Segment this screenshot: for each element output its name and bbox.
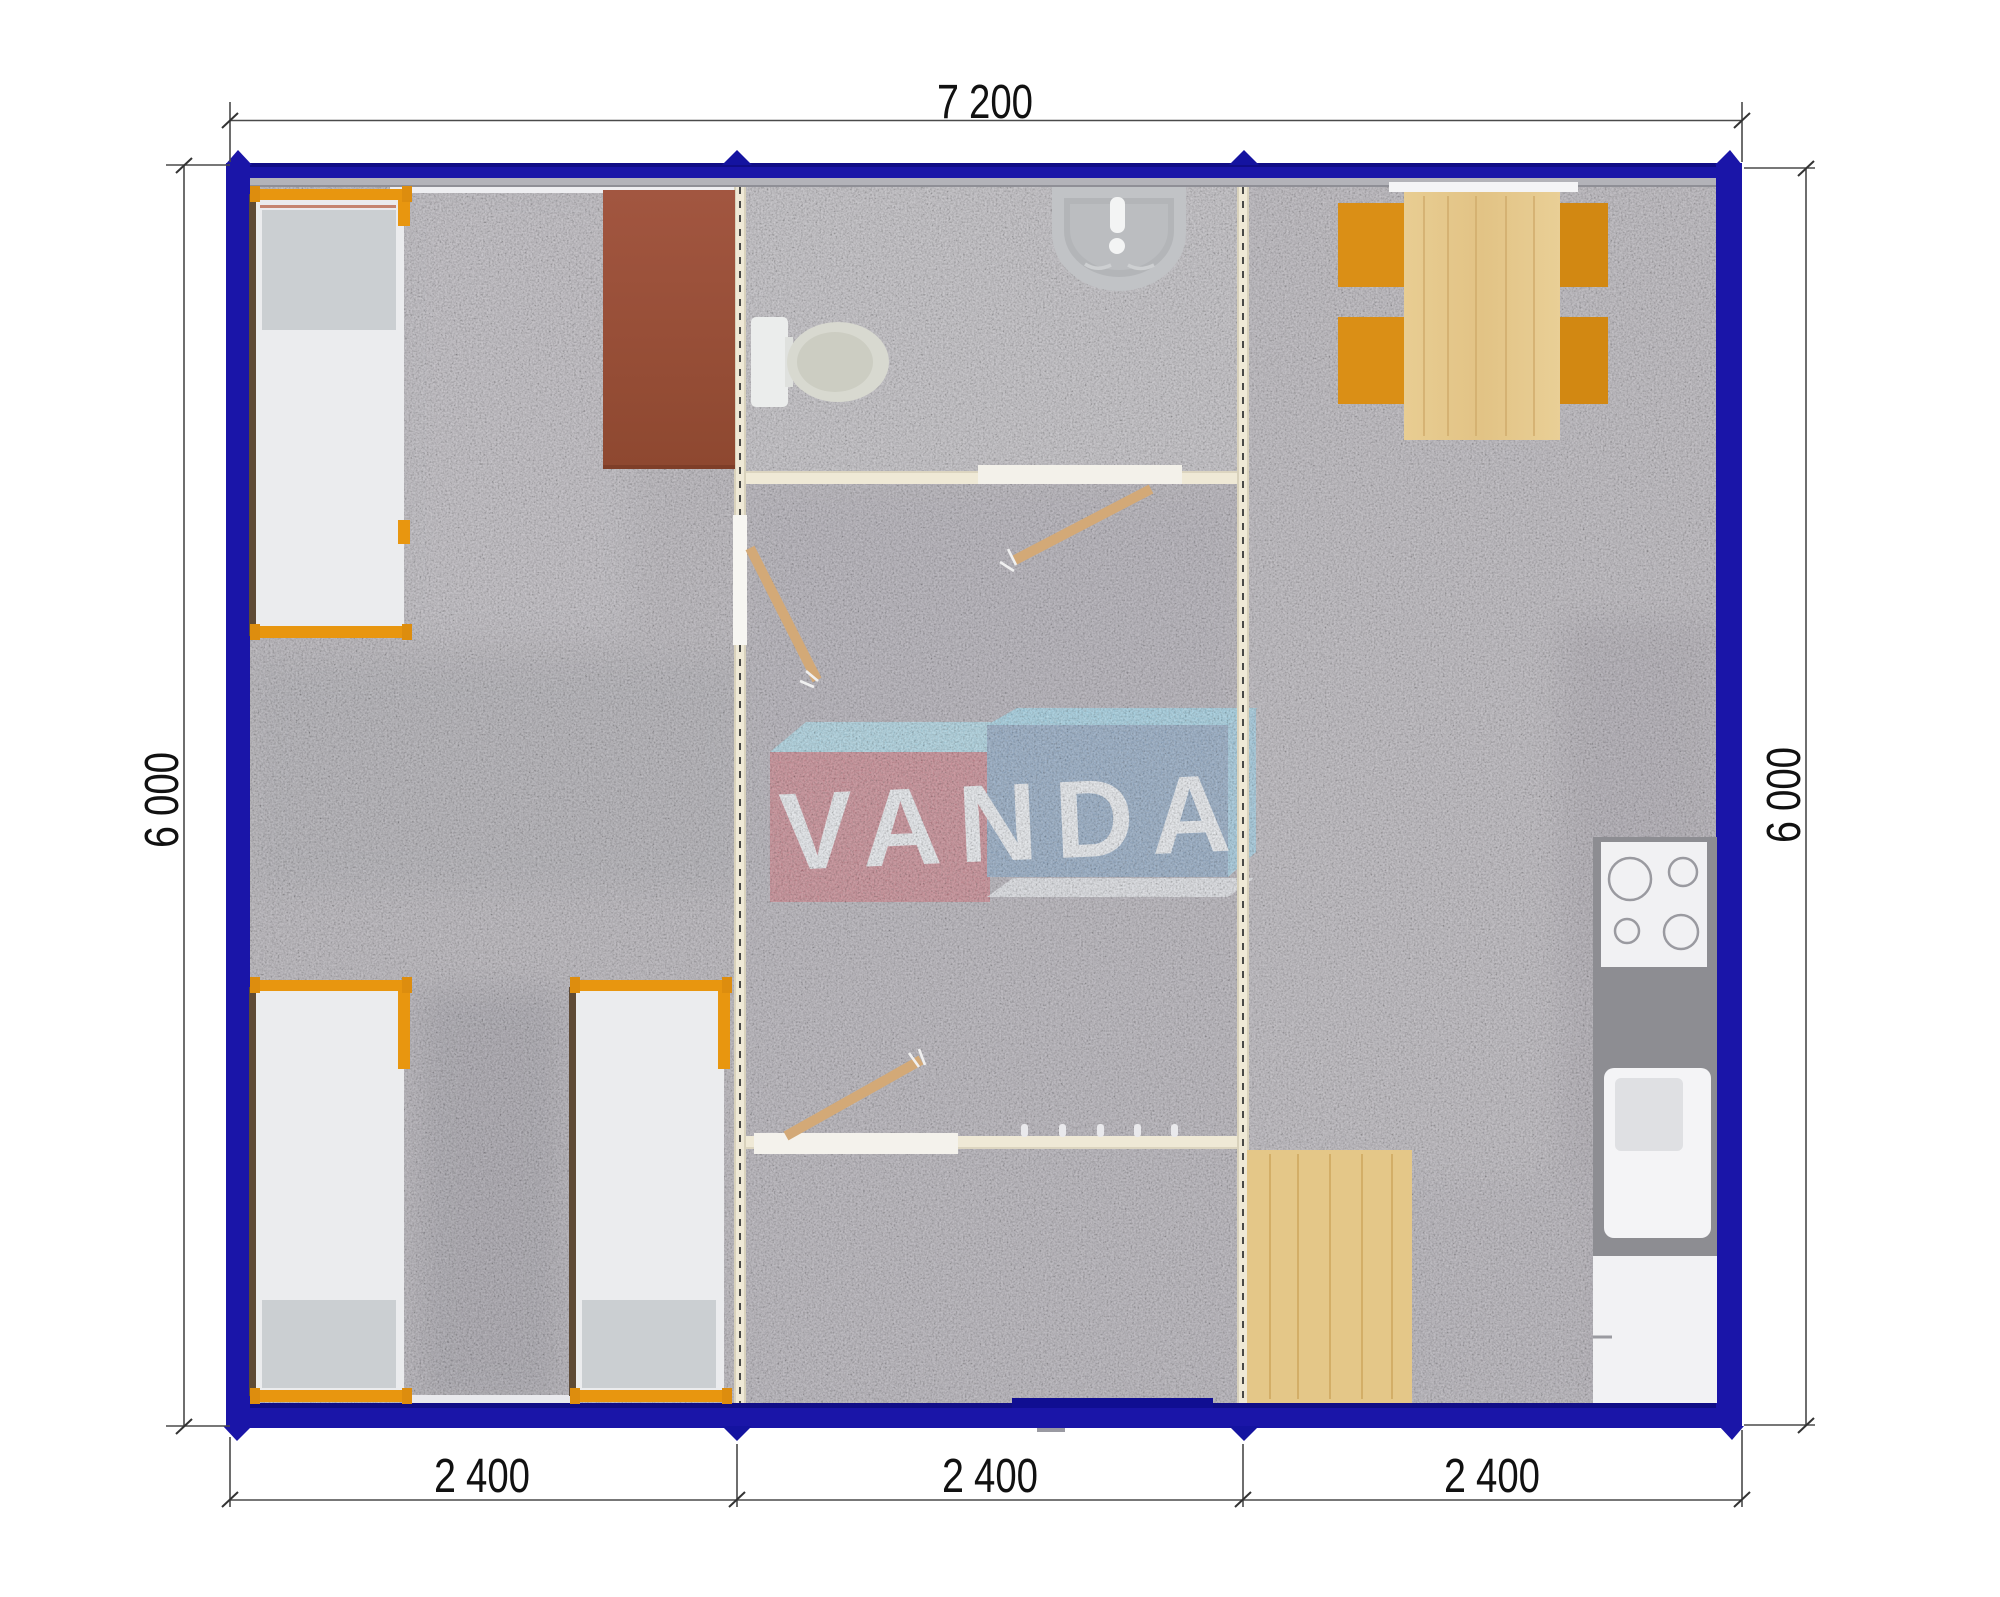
svg-text:2: 2 — [434, 1450, 456, 1503]
svg-text:2: 2 — [1444, 1450, 1466, 1503]
svg-text:7: 7 — [937, 76, 959, 129]
svg-text:400: 400 — [974, 1450, 1038, 1503]
svg-text:000: 000 — [136, 752, 189, 816]
svg-text:2: 2 — [942, 1450, 964, 1503]
svg-text:400: 400 — [466, 1450, 530, 1503]
svg-text:6: 6 — [1758, 821, 1811, 843]
svg-text:400: 400 — [1476, 1450, 1540, 1503]
svg-text:000: 000 — [1758, 747, 1811, 811]
svg-text:200: 200 — [969, 76, 1033, 129]
svg-text:6: 6 — [136, 826, 189, 848]
